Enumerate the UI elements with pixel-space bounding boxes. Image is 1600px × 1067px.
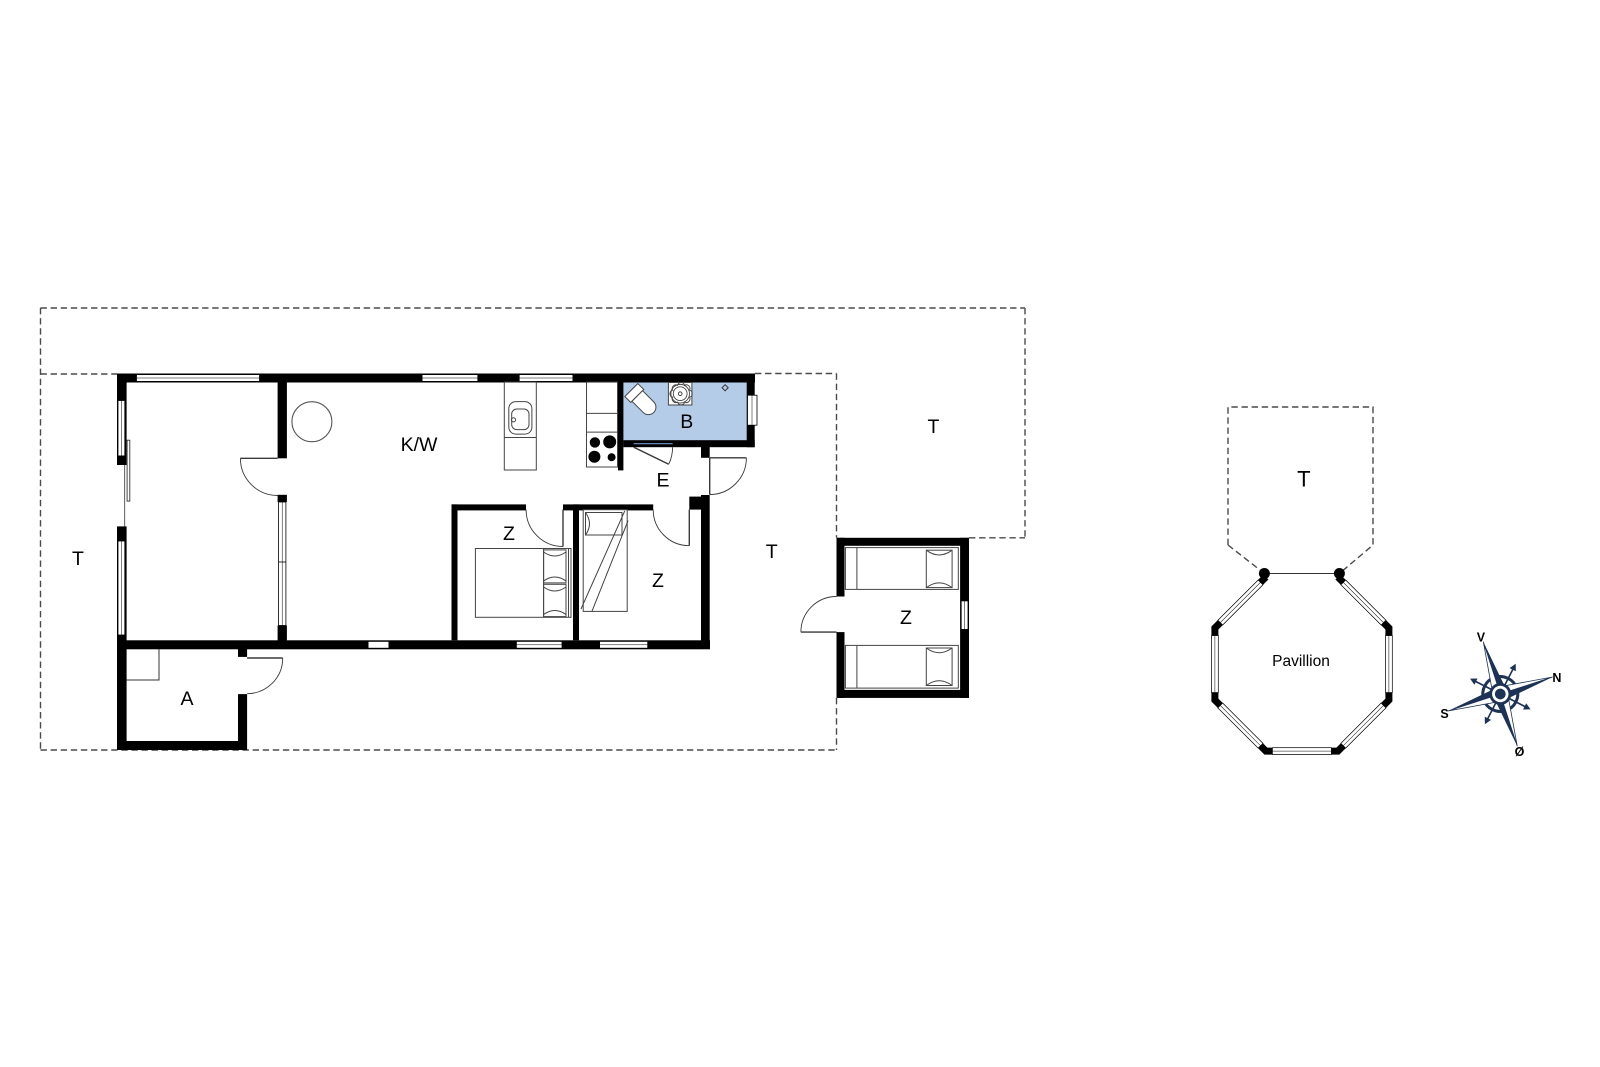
svg-text:N: N (1552, 671, 1561, 685)
svg-text:Z: Z (503, 523, 515, 545)
svg-text:Ø: Ø (1515, 745, 1525, 759)
svg-text:Z: Z (900, 607, 912, 629)
svg-text:S: S (1440, 707, 1448, 721)
svg-text:Z: Z (652, 570, 664, 592)
svg-text:T: T (766, 541, 778, 563)
svg-text:Pavillion: Pavillion (1272, 653, 1330, 670)
svg-text:B: B (680, 411, 693, 433)
svg-text:A: A (180, 688, 193, 710)
svg-text:E: E (656, 470, 669, 492)
svg-text:V: V (1477, 631, 1486, 645)
svg-text:T: T (1297, 467, 1310, 492)
svg-text:T: T (928, 416, 940, 438)
svg-text:T: T (72, 548, 84, 570)
svg-text:K/W: K/W (401, 434, 438, 456)
